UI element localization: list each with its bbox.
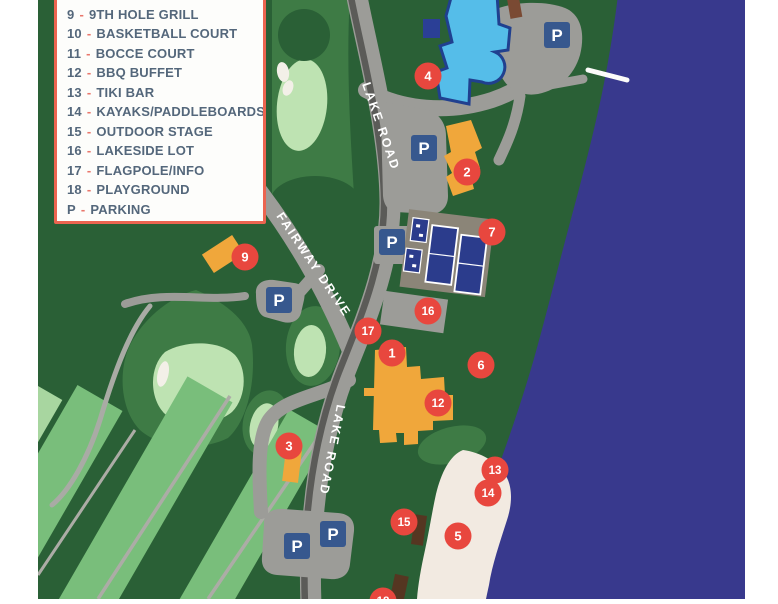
svg-text:1: 1 [388, 346, 395, 361]
marker-7: 7 [479, 219, 506, 246]
svg-text:9: 9 [241, 250, 248, 265]
svg-text:P: P [418, 139, 429, 158]
legend-item-10: 10-BASKETBALL COURT [67, 24, 263, 44]
svg-text:4: 4 [424, 69, 432, 84]
svg-text:17: 17 [362, 326, 375, 338]
svg-text:13: 13 [489, 465, 502, 477]
fairway-top [270, 0, 360, 228]
parking-sign: P [284, 533, 310, 559]
marker-17: 17 [355, 318, 382, 345]
legend-item-9: 9-9TH HOLE GRILL [67, 5, 263, 25]
svg-text:P: P [291, 537, 302, 556]
basketball-court [410, 218, 429, 243]
marker-2: 2 [454, 159, 481, 186]
legend-item-15: 15-OUTDOOR STAGE [67, 122, 263, 142]
legend-item-17: 17-FLAGPOLE/INFO [67, 161, 263, 181]
legend-item-13: 13-TIKI BAR [67, 83, 263, 103]
legend-item-12: 12-BBQ BUFFET [67, 63, 263, 83]
svg-text:6: 6 [477, 358, 484, 373]
legend-item-18: 18-PLAYGROUND [67, 180, 263, 200]
clubhouse-wing [364, 388, 375, 396]
marker-12: 12 [425, 390, 452, 417]
parking-sign: P [320, 521, 346, 547]
svg-text:3: 3 [285, 439, 292, 454]
svg-text:P: P [551, 26, 562, 45]
marker-9: 9 [232, 244, 259, 271]
legend-item-14: 14-KAYAKS/PADDLEBOARDS [67, 102, 263, 122]
parking-sign: P [544, 22, 570, 48]
marker-14: 14 [475, 480, 502, 507]
sport-courts [400, 209, 495, 297]
marker-3: 3 [276, 433, 303, 460]
map-legend: 8-POOL/SNACK BAR 9-9TH HOLE GRILL 10-BAS… [54, 0, 266, 224]
parking-sign: P [266, 287, 292, 313]
svg-text:12: 12 [432, 398, 445, 410]
tree-cluster [278, 9, 330, 61]
svg-text:16: 16 [422, 306, 435, 318]
marker-15: 15 [391, 509, 418, 536]
marker-4: 4 [415, 63, 442, 90]
svg-text:15: 15 [398, 517, 411, 529]
marker-5: 5 [445, 523, 472, 550]
svg-text:5: 5 [454, 529, 461, 544]
parking-sign: P [411, 135, 437, 161]
legend-item-16: 16-LAKESIDE LOT [67, 141, 263, 161]
marker-6: 6 [468, 352, 495, 379]
parking-sign: P [379, 229, 405, 255]
marker-1: 1 [379, 340, 406, 367]
bocce-court [403, 248, 422, 273]
svg-text:14: 14 [482, 488, 495, 500]
marker-16: 16 [415, 298, 442, 325]
legend-item-parking: P-PARKING [67, 200, 263, 220]
svg-text:7: 7 [488, 225, 495, 240]
svg-text:2: 2 [463, 165, 470, 180]
svg-text:P: P [386, 233, 397, 252]
marker-13: 13 [482, 457, 509, 484]
svg-text:P: P [273, 291, 284, 310]
svg-text:P: P [327, 525, 338, 544]
pool-shade-structure [423, 19, 440, 38]
legend-item-11: 11-BOCCE COURT [67, 44, 263, 64]
